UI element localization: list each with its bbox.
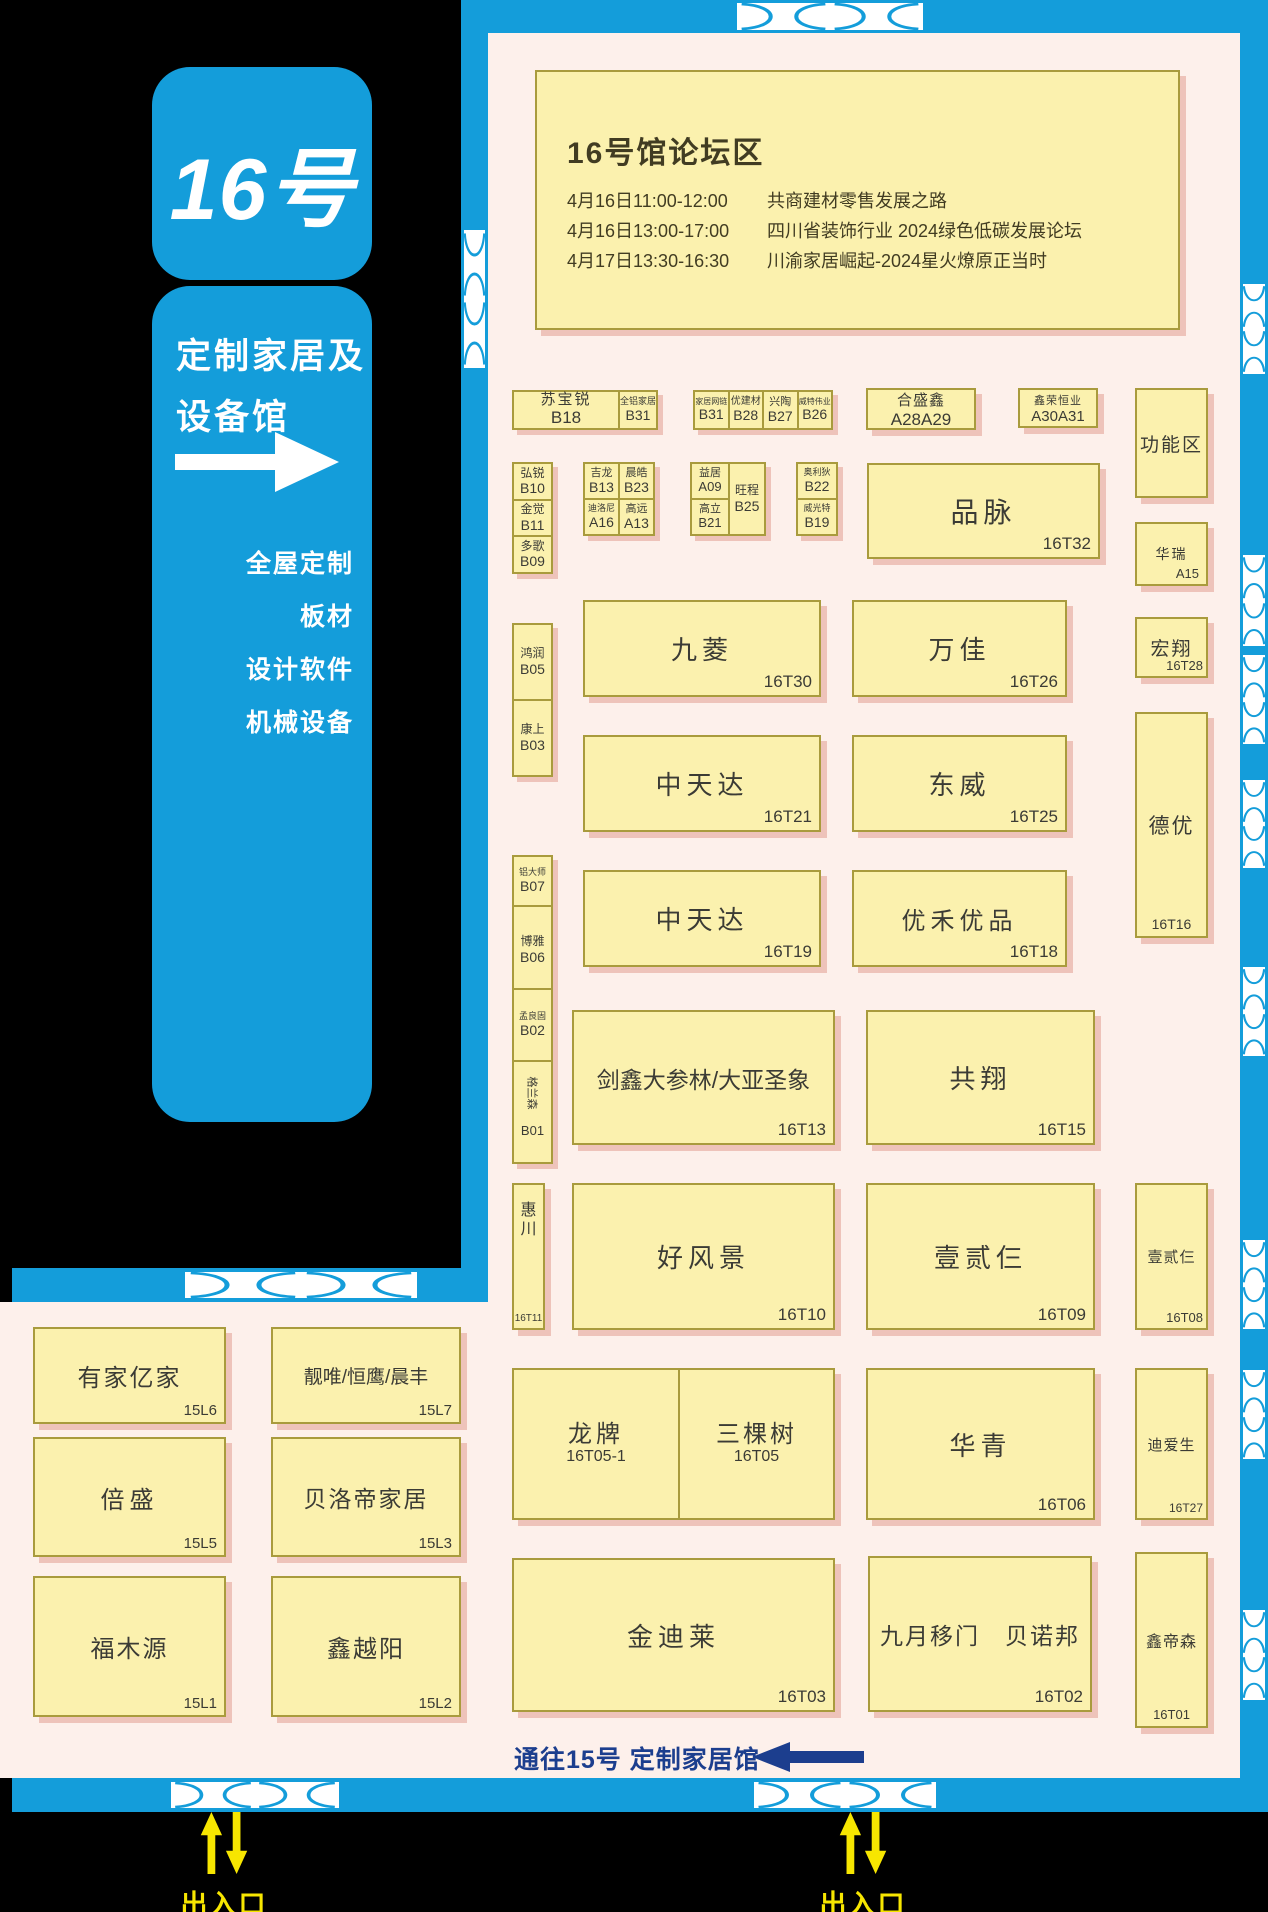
booth-id: 16T26 <box>1010 672 1058 692</box>
booth-B19: 威光特 B19 <box>798 498 836 534</box>
booth-name: 迪洛尼 <box>588 504 615 514</box>
booth-15L6: 有家亿家 15L6 <box>33 1327 226 1424</box>
booth-id: A28A29 <box>891 410 952 430</box>
door-icon <box>1243 1610 1265 1700</box>
booth-name: 兴陶 <box>769 396 791 408</box>
booth-id: B31 <box>626 407 651 423</box>
booth-id: B22 <box>805 478 830 494</box>
forum-title: 16号馆论坛区 <box>567 128 1178 172</box>
booth-A16: 迪洛尼 A16 <box>585 500 618 534</box>
door-icon <box>1243 555 1265 646</box>
hall-name-line1: 定制家居及 <box>152 326 372 387</box>
booth-id: 15L5 <box>184 1535 217 1552</box>
booth-name: 鑫越阳 <box>327 1629 405 1664</box>
booth-16T27: 迪爱生 16T27 <box>1135 1368 1208 1520</box>
booth-16T05-1: 龙牌 16T05-1 <box>514 1370 678 1518</box>
booth-id: 15L6 <box>184 1402 217 1419</box>
booth-group-B13-A13: 吉龙 B13 晨皓 B23 迪洛尼 A16 高远 A13 <box>583 462 655 536</box>
booth-name: 奥利狄 <box>803 468 830 478</box>
booth-group-B05-B03: 鸿润 B05 康上 B03 <box>512 623 553 777</box>
booth-name: 龙牌 <box>568 1422 624 1448</box>
booth-name: 孟良固 <box>519 1012 546 1022</box>
forum-schedule: 4月16日11:00-12:00共商建材零售发展之路 4月16日13:00-17… <box>567 186 1178 276</box>
booth-B05: 鸿润 B05 <box>514 625 551 699</box>
booth-name: 旺程 <box>735 484 759 497</box>
category-list: 全屋定制 板材 设计软件 机械设备 <box>246 538 354 750</box>
booth-id: 16T15 <box>1038 1120 1086 1140</box>
booth-name: 三棵树 <box>716 1422 797 1448</box>
booth-id: 16T13 <box>778 1120 826 1140</box>
booth-name: 好风景 <box>657 1238 750 1275</box>
category-item: 板材 <box>246 591 354 644</box>
booth-name: 中天达 <box>655 900 748 937</box>
booth-function-area: 功能区 <box>1135 388 1208 498</box>
booth-name: 全铝家居 <box>620 397 656 407</box>
booth-16T28: 宏翔 16T28 <box>1135 617 1208 678</box>
booth-name: 德优 <box>1149 810 1195 840</box>
category-item: 机械设备 <box>246 697 354 750</box>
booth-name: 华青 <box>949 1426 1011 1463</box>
booth-id: 16T18 <box>1010 942 1058 962</box>
forum-area-box: 16号馆论坛区 4月16日11:00-12:00共商建材零售发展之路 4月16日… <box>535 70 1180 330</box>
booth-name: 合盛鑫 <box>897 389 945 410</box>
booth-16T13: 剑鑫大参林/大亚圣象 16T13 <box>572 1010 835 1145</box>
door-icon <box>464 230 485 368</box>
booth-B21: 高立 B21 <box>692 498 728 534</box>
booth-16T09: 壹贰仨 16T09 <box>866 1183 1095 1330</box>
booth-id: B27 <box>768 408 793 424</box>
booth-name: 贝洛帝家居 <box>304 1480 429 1514</box>
booth-id: 16T02 <box>1035 1687 1083 1707</box>
forum-topic: 四川省装饰行业 2024绿色低碳发展论坛 <box>767 221 1082 241</box>
booth-B03: 康上 B03 <box>514 699 551 775</box>
booth-16T32: 品脉 16T32 <box>867 463 1100 559</box>
booth-id: 16T16 <box>1137 916 1206 932</box>
forum-schedule-row: 4月16日11:00-12:00共商建材零售发展之路 <box>567 186 1178 216</box>
booth-B06: 博雅 B06 <box>514 905 551 993</box>
booth-16T11: 惠川 16T11 <box>512 1183 545 1330</box>
booth-name: 倍盛 <box>101 1480 159 1515</box>
forum-schedule-row: 4月16日13:00-17:00四川省装饰行业 2024绿色低碳发展论坛 <box>567 216 1178 246</box>
booth-name: 优建材 <box>731 396 761 407</box>
door-icon <box>1243 780 1265 868</box>
booth-16T19: 中天达 16T19 <box>583 870 821 967</box>
booth-id: 15L1 <box>184 1695 217 1712</box>
booth-name: 鸿润 <box>520 647 544 660</box>
booth-15L7: 靓唯/恒鹰/晨丰 15L7 <box>271 1327 461 1424</box>
booth-A13: 高远 A13 <box>618 500 653 534</box>
booth-B13: 吉龙 B13 <box>585 464 618 498</box>
wall-left <box>461 0 488 1302</box>
booth-B27: 兴陶 B27 <box>762 392 797 428</box>
booth-name: 共翔 <box>949 1059 1011 1096</box>
booth-name: 金迪莱 <box>627 1617 720 1654</box>
booth-name: 靓唯/恒鹰/晨丰 <box>304 1362 429 1389</box>
booth-id: B10 <box>520 480 545 496</box>
booth-name: 中天达 <box>655 765 748 802</box>
door-icon <box>737 3 923 30</box>
booth-B26: 威特伟业 B26 <box>797 392 832 428</box>
forum-time: 4月16日11:00-12:00 <box>567 186 767 216</box>
booth-id: 16T05-1 <box>566 1448 626 1466</box>
booth-id: 16T10 <box>778 1305 826 1325</box>
booth-group-16T05: 龙牌 16T05-1 三棵树 16T05 <box>512 1368 835 1520</box>
booth-16T15: 共翔 16T15 <box>866 1010 1095 1145</box>
booth-id: 16T30 <box>764 672 812 692</box>
booth-id: 16T03 <box>778 1687 826 1707</box>
booth-name: 剑鑫大参林/大亚圣象 <box>597 1061 810 1095</box>
booth-id: A13 <box>624 515 649 531</box>
booth-id: B25 <box>735 498 760 514</box>
booth-16T21: 中天达 16T21 <box>583 735 821 832</box>
category-item: 设计软件 <box>246 644 354 697</box>
booth-name: 苏宝锐 <box>540 392 591 409</box>
booth-id: A16 <box>589 514 614 530</box>
booth-B25: 旺程 B25 <box>728 464 764 534</box>
booth-name: 万佳 <box>928 630 990 667</box>
category-item: 全屋定制 <box>246 538 354 591</box>
hall-banner: 定制家居及 设备馆 全屋定制 板材 设计软件 机械设备 <box>152 286 372 1122</box>
booth-name: 东威 <box>928 765 990 802</box>
booth-name: 博雅 <box>520 935 544 948</box>
booth-name: 威光特 <box>803 504 830 514</box>
booth-id: 16T01 <box>1137 1707 1206 1722</box>
booth-B11: 金觉 B11 <box>514 499 551 536</box>
booth-id: 16T27 <box>1169 1501 1203 1515</box>
booth-id: 16T19 <box>764 942 812 962</box>
booth-id: 16T09 <box>1038 1305 1086 1325</box>
booth-name: 九月移门 贝诺邦 <box>880 1617 1080 1651</box>
booth-name: 迪爱生 <box>1147 1434 1195 1455</box>
booth-group-B31-B26: 家居网链 B31 优建材 B28 兴陶 B27 威特伟业 B26 <box>693 390 833 430</box>
booth-group-B07-B06: 铝大师 B07 博雅 B06 <box>512 855 553 995</box>
booth-16T02: 九月移门 贝诺邦 16T02 <box>868 1556 1092 1712</box>
booth-16T18: 优禾优品 16T18 <box>852 870 1067 967</box>
booth-A09: 益居 A09 <box>692 464 728 498</box>
forum-topic: 川渝家居崛起-2024星火燎原正当时 <box>767 251 1047 271</box>
booth-16T03: 金迪莱 16T03 <box>512 1558 835 1712</box>
booth-name: 鑫帝森 <box>1146 1628 1197 1652</box>
booth-15L5: 倍盛 15L5 <box>33 1437 226 1557</box>
booth-16T10: 好风景 16T10 <box>572 1183 835 1330</box>
booth-name: 九菱 <box>671 630 733 667</box>
booth-id: B13 <box>589 479 614 495</box>
booth-id: B07 <box>520 878 545 894</box>
booth-name: 金觉 <box>520 503 544 516</box>
door-icon <box>1243 967 1265 1056</box>
booth-B28: 优建材 B28 <box>728 392 763 428</box>
booth-id: B11 <box>521 517 545 533</box>
booth-B31-wanglian: 家居网链 B31 <box>695 392 728 428</box>
booth-B10: 弘锐 B10 <box>514 464 551 499</box>
booth-name: 高立 <box>699 503 721 515</box>
booth-16T30: 九菱 16T30 <box>583 600 821 697</box>
booth-name: 功能区 <box>1140 430 1203 457</box>
booth-16T01: 鑫帝森 16T01 <box>1135 1552 1208 1728</box>
booth-id: 15L3 <box>419 1535 452 1552</box>
booth-name: 家居网链 <box>695 398 727 407</box>
booth-id: 15L7 <box>419 1402 452 1419</box>
entrance-arrows-icon <box>200 1812 248 1874</box>
door-icon <box>1243 655 1265 744</box>
forum-time: 4月17日13:30-16:30 <box>567 246 767 276</box>
hall-number-label: 16号 <box>152 119 372 244</box>
booth-name: 有家亿家 <box>78 1358 182 1393</box>
booth-16T25: 东威 16T25 <box>852 735 1067 832</box>
booth-name: 格兰森 <box>525 1077 541 1110</box>
hall-number-badge: 16号 <box>152 67 372 280</box>
booth-id: B01 <box>521 1124 544 1139</box>
wall-right <box>1240 0 1268 1812</box>
booth-name: 弘锐 <box>520 467 544 480</box>
entrance-south: 出入口 <box>815 1812 911 1912</box>
booth-B02: 孟良固 B02 <box>514 990 551 1060</box>
booth-id: B28 <box>733 407 758 423</box>
booth-name: 晨皓 <box>626 467 648 479</box>
booth-name: 惠川 <box>520 1201 537 1239</box>
booth-id: B03 <box>520 737 545 753</box>
booth-id: B21 <box>698 516 721 531</box>
booth-B07: 铝大师 B07 <box>514 857 551 905</box>
door-icon <box>754 1782 936 1808</box>
booth-A30A31: 鑫荣恒业 A30A31 <box>1018 388 1098 428</box>
booth-name: 宏翔 <box>1150 634 1192 661</box>
entrance-arrows-icon <box>839 1812 887 1874</box>
booth-B31-quanlv: 全铝家居 B31 <box>618 392 656 428</box>
booth-name: 优禾优品 <box>902 901 1018 936</box>
booth-id: 16T08 <box>1166 1310 1203 1325</box>
booth-name: 威特伟业 <box>799 398 831 407</box>
forum-schedule-row: 4月17日13:30-16:30川渝家居崛起-2024星火燎原正当时 <box>567 246 1178 276</box>
door-icon <box>171 1782 339 1808</box>
booth-B22: 奥利狄 B22 <box>798 464 836 498</box>
entrance-label: 出入口 <box>815 1883 911 1912</box>
left-arrow-icon <box>752 1742 864 1772</box>
booth-name: 康上 <box>520 723 544 736</box>
booth-id: 15L2 <box>419 1695 452 1712</box>
booth-id: A30A31 <box>1031 408 1084 425</box>
booth-group-B10-B09: 弘锐 B10 金觉 B11 多歌 B09 <box>512 462 553 574</box>
booth-B01: 格兰森 B01 <box>514 1060 551 1162</box>
booth-id: A15 <box>1176 566 1199 581</box>
booth-16T05: 三棵树 16T05 <box>678 1370 833 1518</box>
booth-name: 壹贰仨 <box>934 1238 1027 1275</box>
booth-id: 16T05 <box>734 1448 779 1466</box>
booth-id: B02 <box>520 1022 545 1038</box>
booth-id: B31 <box>699 406 724 422</box>
booth-15L3: 贝洛帝家居 15L3 <box>271 1437 461 1557</box>
booth-id: 16T28 <box>1166 658 1203 673</box>
booth-id: B26 <box>802 406 827 422</box>
booth-name: 品脉 <box>950 491 1016 531</box>
booth-id: 16T06 <box>1038 1495 1086 1515</box>
right-arrow-icon <box>174 420 346 504</box>
booth-id: B09 <box>520 553 545 569</box>
booth-id: 16T25 <box>1010 807 1058 827</box>
booth-id: B23 <box>624 479 649 495</box>
booth-id: B05 <box>520 661 545 677</box>
hall16-floorplan: 16号 定制家居及 设备馆 全屋定制 板材 设计软件 机械设备 16号馆论坛区 … <box>0 0 1268 1912</box>
booth-name: 华瑞 <box>1156 544 1188 564</box>
booth-B23: 晨皓 B23 <box>618 464 653 498</box>
booth-id: 16T32 <box>1043 534 1091 554</box>
booth-name: 吉龙 <box>591 467 613 479</box>
entrance-label: 出入口 <box>176 1883 272 1912</box>
booth-16T08: 壹贰仨 16T08 <box>1135 1183 1208 1330</box>
booth-name: 多歌 <box>520 540 544 553</box>
booth-name: 益居 <box>699 467 721 479</box>
booth-15L1: 福木源 15L1 <box>33 1576 226 1717</box>
booth-A28A29: 合盛鑫 A28A29 <box>866 388 976 430</box>
booth-group-B02-B01: 孟良固 B02 格兰森 B01 <box>512 988 553 1164</box>
entrance-west: 出入口 <box>176 1812 272 1912</box>
booth-name: 壹贰仨 <box>1147 1246 1195 1267</box>
booth-group-B18-B31: 苏宝锐 B18 全铝家居 B31 <box>512 390 658 430</box>
booth-B18: 苏宝锐 B18 <box>514 392 618 428</box>
door-icon <box>1243 284 1265 374</box>
booth-name: 福木源 <box>91 1629 169 1664</box>
booth-B09: 多歌 B09 <box>514 535 551 572</box>
booth-15L2: 鑫越阳 15L2 <box>271 1576 461 1717</box>
forum-topic: 共商建材零售发展之路 <box>767 191 947 211</box>
door-icon <box>1243 1240 1265 1329</box>
booth-id: B19 <box>805 514 830 530</box>
booth-id: 16T21 <box>764 807 812 827</box>
booth-A15: 华瑞 A15 <box>1135 522 1208 586</box>
door-icon <box>1243 1370 1265 1459</box>
passage-label: 通往15号 定制家居馆 <box>514 1740 760 1776</box>
booth-id: B18 <box>551 408 581 428</box>
booth-group-A09-B25: 益居 A09 高立 B21 旺程 B25 <box>690 462 766 536</box>
forum-time: 4月16日13:00-17:00 <box>567 216 767 246</box>
booth-16T06: 华青 16T06 <box>866 1368 1095 1520</box>
booth-name: 鑫荣恒业 <box>1034 392 1082 408</box>
booth-id: A09 <box>698 480 721 495</box>
booth-16T26: 万佳 16T26 <box>852 600 1067 697</box>
booth-id: 16T11 <box>514 1313 543 1324</box>
door-icon <box>185 1272 417 1298</box>
booth-group-B22-B19: 奥利狄 B22 威光特 B19 <box>796 462 838 536</box>
booth-id: B06 <box>520 949 545 965</box>
booth-name: 铝大师 <box>519 868 546 878</box>
booth-16T16: 德优 16T16 <box>1135 712 1208 938</box>
booth-name: 高远 <box>626 503 648 515</box>
